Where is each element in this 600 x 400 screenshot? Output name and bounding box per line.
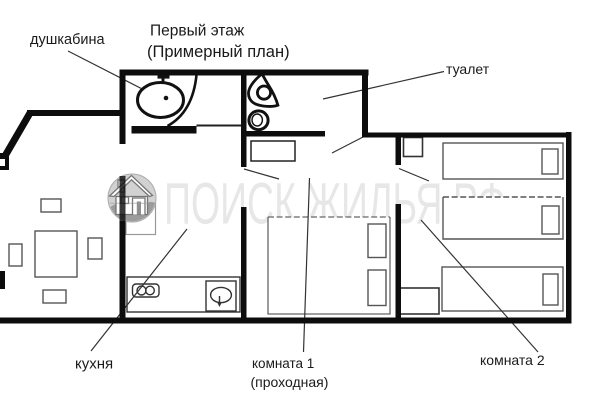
svg-text:душкабина: душкабина <box>30 32 105 48</box>
svg-text:Первый этаж: Первый этаж <box>150 23 245 40</box>
svg-text:кухня: кухня <box>75 356 113 373</box>
svg-text:комната 2: комната 2 <box>480 352 545 368</box>
svg-text:туалет: туалет <box>446 61 490 77</box>
svg-text:(Примерный план): (Примерный план) <box>147 43 290 61</box>
svg-text:(проходная): (проходная) <box>251 374 329 390</box>
svg-text:комната 1: комната 1 <box>252 356 314 371</box>
